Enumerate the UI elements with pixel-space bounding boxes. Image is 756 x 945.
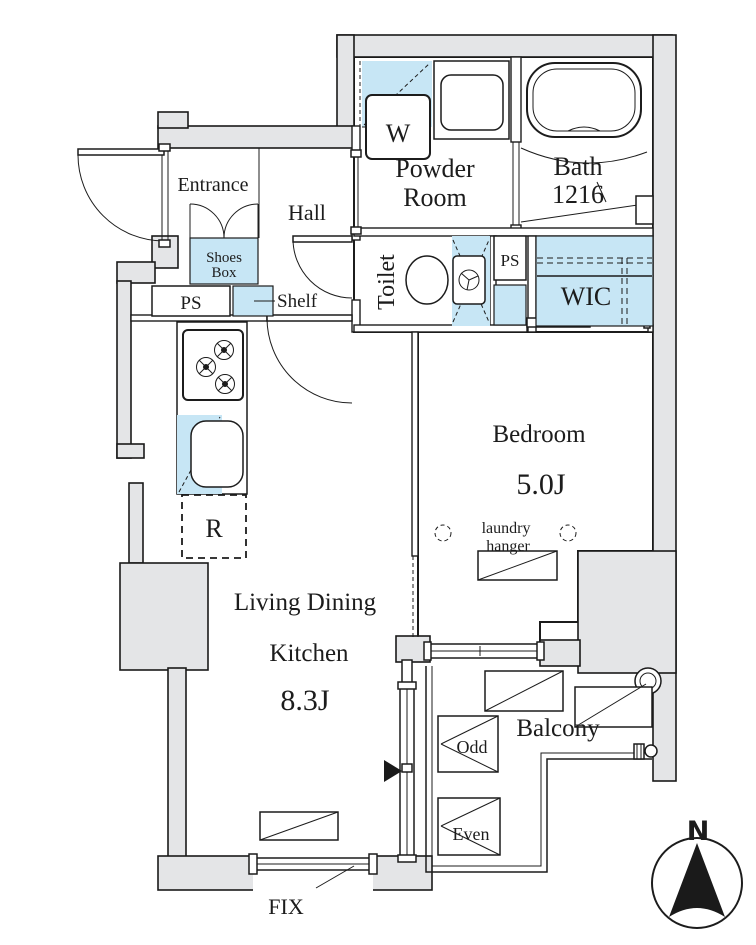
laundry-hanger-label-1: laundry — [482, 520, 531, 537]
refrigerator-label: R — [205, 514, 223, 543]
bedroom-size-label: 5.0J — [516, 468, 566, 501]
wall-wet-row-divider — [354, 228, 653, 236]
powder-door-cap — [351, 227, 361, 234]
railing-pipe — [645, 745, 657, 757]
shoes-box-label-2: Box — [211, 265, 237, 281]
ldk-size-label: 8.3J — [280, 684, 330, 717]
wall-left-foot — [117, 444, 144, 458]
ldk-label-1: Living Dining — [234, 589, 377, 616]
toilet-bowl-icon — [406, 256, 448, 304]
floorplan-page: N Entrance Hall Powder Room Bath 1216 W … — [0, 0, 756, 945]
hall-label: Hall — [288, 200, 326, 225]
wic-area — [536, 236, 653, 326]
powder-door-cap — [351, 150, 361, 157]
fix-window-cap — [369, 854, 377, 874]
powder-room-label-2: Room — [403, 183, 467, 212]
washing-machine-label: W — [386, 119, 411, 148]
wall-powder-bath-a — [511, 57, 521, 142]
ldk-window-cap — [398, 682, 416, 689]
hall-ldk-door-leaf — [267, 315, 352, 321]
bedroom-window-cap — [424, 642, 431, 660]
entrance-label: Entrance — [177, 174, 248, 196]
compass: N — [652, 816, 742, 928]
ldk-label-2: Kitchen — [269, 640, 349, 667]
bedroom-label: Bedroom — [492, 421, 586, 448]
fix-window-cap — [249, 854, 257, 874]
ldk-window-mullion — [402, 764, 412, 772]
fix-window-label: FIX — [268, 894, 304, 919]
ldk-window-cap — [398, 855, 416, 862]
wall-top — [337, 35, 672, 57]
balcony-even-label: Even — [453, 824, 490, 844]
bath-label: Bath — [553, 152, 602, 181]
powder-room-label-1: Powder — [395, 154, 475, 183]
laundry-hanger-label-2: hanger — [486, 538, 530, 555]
wall-entrance-notch — [158, 112, 188, 128]
wall-top-return — [337, 35, 354, 140]
floorplan-svg: N Entrance Hall Powder Room Bath 1216 W … — [0, 0, 756, 945]
entrance-door-leaf — [78, 149, 164, 155]
entrance-door-cap — [159, 144, 170, 151]
pillar — [120, 563, 208, 670]
wall-bottom-left — [158, 856, 262, 890]
pipe-space-entrance-label: PS — [180, 293, 201, 314]
wall-se-block — [578, 551, 676, 673]
wall-entrance-top — [158, 126, 354, 148]
bath-size-label: 1216 — [552, 180, 604, 209]
compass-north-label: N — [687, 816, 710, 847]
wic-label: WIC — [561, 282, 612, 311]
wall-left-2 — [129, 483, 143, 563]
entrance-door-cap — [159, 240, 170, 247]
wall-left-step — [117, 262, 155, 283]
entrance-door-arc — [78, 155, 164, 241]
toilet-label: Toilet — [374, 254, 400, 310]
north-arrow-icon — [669, 843, 725, 917]
shoes-box-label-1: Shoes — [206, 250, 242, 266]
toilet-door-leaf — [293, 236, 352, 242]
balcony-label: Balcony — [516, 715, 600, 742]
shelf-label: Shelf — [277, 291, 318, 312]
wall-ldk-bedroom-partition — [412, 332, 418, 556]
wall-toilet-bottom — [354, 325, 527, 332]
kitchen-sink-icon — [191, 421, 243, 487]
pipe-space-blue — [494, 285, 526, 325]
vanity-sink-icon — [441, 75, 503, 130]
bath-counter — [636, 196, 653, 224]
wall-bedroom-balcony-step — [540, 640, 580, 666]
railing-fitting — [634, 744, 644, 759]
wall-left-1 — [117, 281, 131, 458]
bedroom-window-cap — [537, 642, 544, 660]
wall-below-pillar — [168, 668, 186, 858]
pipe-space-toilet-label: PS — [501, 251, 520, 270]
balcony-odd-label: Odd — [457, 737, 488, 757]
